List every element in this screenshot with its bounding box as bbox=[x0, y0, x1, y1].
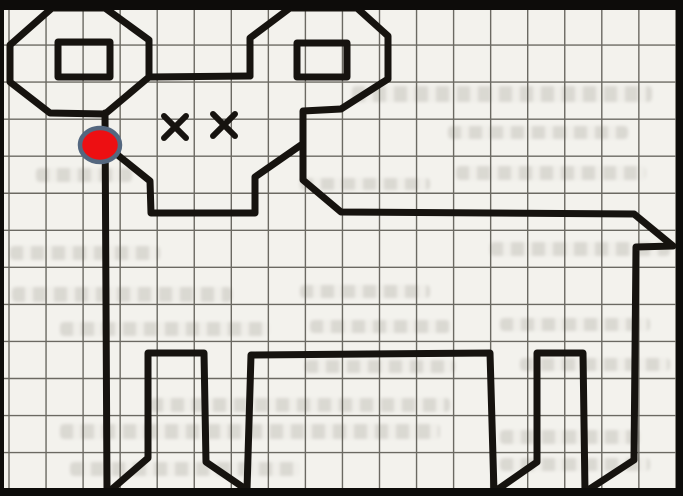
frame-left bbox=[0, 0, 4, 496]
muzzle-line bbox=[104, 144, 301, 213]
frame-right bbox=[676, 0, 683, 496]
right-horn-inner-square bbox=[297, 43, 347, 77]
graph-paper-ram-drawing bbox=[0, 0, 683, 496]
frame-top bbox=[0, 0, 683, 10]
eyes bbox=[164, 114, 235, 138]
frame-bottom bbox=[0, 488, 683, 496]
worksheet-scan bbox=[0, 0, 683, 496]
ram-figure bbox=[10, 8, 673, 492]
left-horn-inner-square bbox=[58, 42, 110, 77]
body-outline bbox=[105, 8, 673, 492]
forehead-line bbox=[149, 76, 250, 77]
start-point-marker bbox=[80, 128, 120, 162]
left-horn-outline bbox=[10, 8, 149, 114]
